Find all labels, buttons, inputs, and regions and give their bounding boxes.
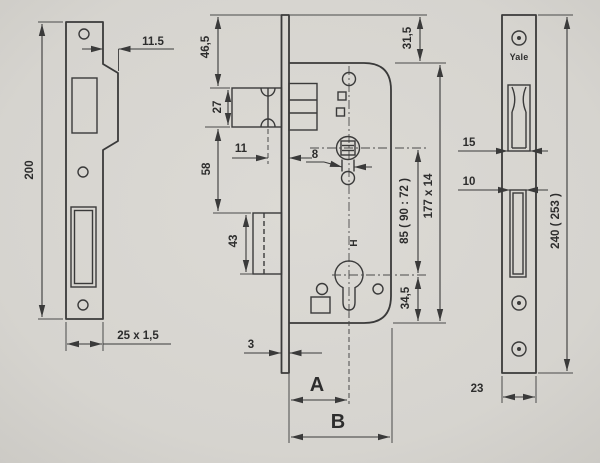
cylinder-to-base-label: 34,5 bbox=[400, 286, 412, 309]
face-width-label: 23 bbox=[471, 383, 484, 395]
spindle-square-label: 8 bbox=[312, 149, 319, 161]
latch-offset-label: 11 bbox=[235, 143, 248, 155]
face-latch-width-label: 15 bbox=[463, 137, 476, 149]
top-to-latch-label: 46,5 bbox=[200, 35, 212, 58]
handing-mark: H bbox=[349, 239, 360, 246]
case-size-label: 177 x 14 bbox=[423, 173, 435, 218]
case-depth-label: B bbox=[331, 411, 345, 433]
face-deadbolt-width-label: 10 bbox=[463, 176, 476, 188]
strike-section-label: 25 x 1,5 bbox=[117, 330, 159, 342]
backset-label: A bbox=[310, 374, 324, 396]
centre-distance-label: 85 ( 90 : 72 ) bbox=[399, 178, 411, 244]
strike-height-label: 200 bbox=[24, 160, 36, 179]
lock-technical-drawing: 200 11.5 25 x 1,5 bbox=[0, 0, 600, 463]
latch-height-label: 27 bbox=[212, 101, 224, 114]
face-height-label: 240 ( 253 ) bbox=[550, 193, 562, 249]
forend-thickness-label: 3 bbox=[248, 339, 254, 351]
strike-lip-label: 11.5 bbox=[142, 36, 164, 48]
deadbolt-height-label: 43 bbox=[228, 235, 240, 248]
brand-logo: Yale bbox=[510, 52, 529, 62]
top-offset-label: 31,5 bbox=[402, 26, 414, 49]
latch-to-deadbolt-label: 58 bbox=[201, 162, 213, 175]
